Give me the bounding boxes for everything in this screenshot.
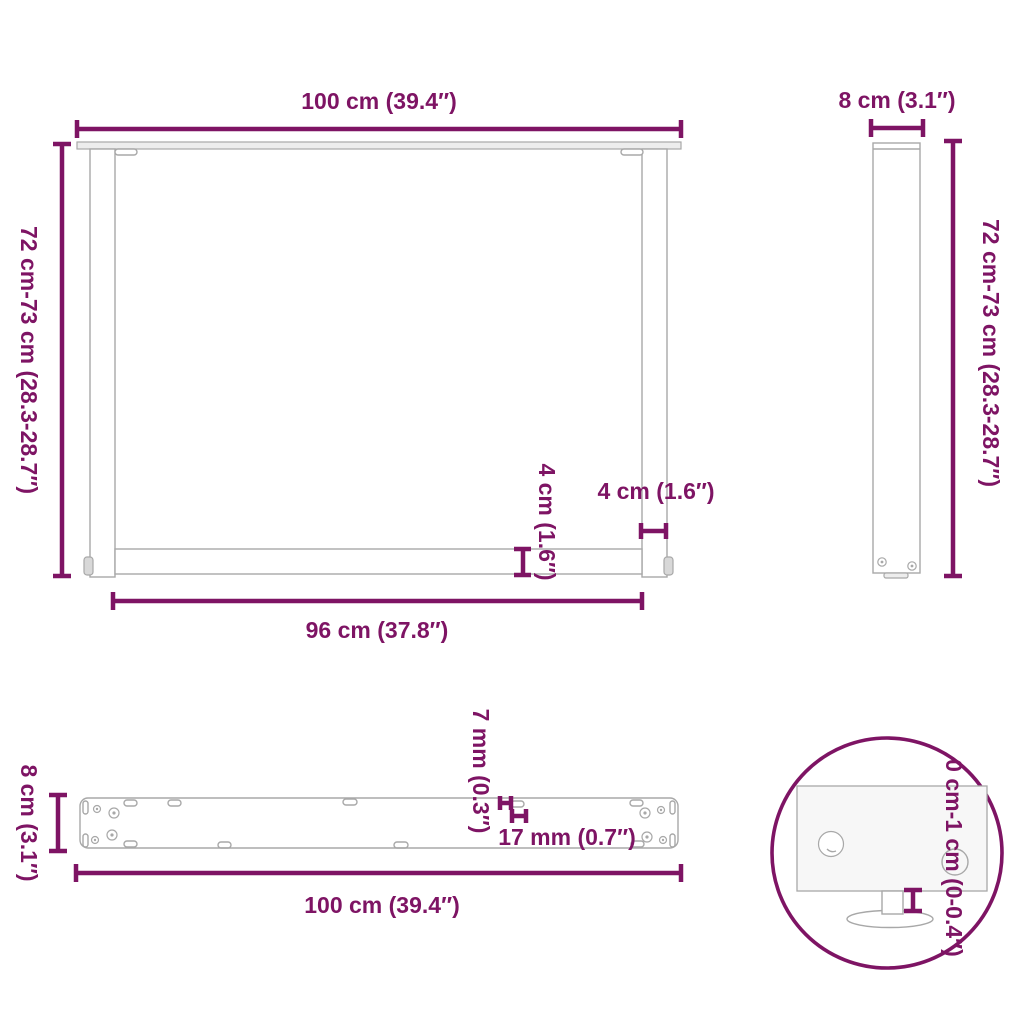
left-leg — [90, 149, 115, 577]
screw-dot — [643, 811, 646, 814]
right-foot — [664, 557, 673, 575]
front-width-label: 100 cm (39.4″) — [301, 88, 457, 114]
side-depth-label: 8 cm (3.1″) — [838, 87, 955, 113]
screw-dot — [645, 835, 648, 838]
right-mount-bracket — [621, 149, 643, 155]
front-frame — [77, 142, 681, 577]
leg-width-label: 4 cm (1.6″) — [597, 478, 714, 504]
front-inner-width-dimension-line — [113, 592, 642, 610]
screw-dot — [110, 833, 113, 836]
side-view: 8 cm (3.1″) 72 cm-73 cm (28.3-28.7″) — [838, 87, 1004, 578]
detail-foot-stem — [882, 891, 903, 914]
diagram-canvas: 100 cm (39.4″) 72 cm-73 cm (28.3-28.7″) … — [0, 0, 1024, 1024]
top-width-label: 100 cm (39.4″) — [304, 892, 460, 918]
front-height-dimension-line — [53, 144, 71, 576]
front-view: 100 cm (39.4″) 72 cm-73 cm (28.3-28.7″) … — [16, 88, 715, 643]
top-width-dimension-line — [76, 864, 681, 882]
side-leg — [873, 143, 920, 578]
hole-pitch-label: 17 mm (0.7″) — [498, 824, 636, 850]
screw-dot — [662, 839, 664, 841]
side-foot — [884, 573, 908, 578]
front-inner-width-label: 96 cm (37.8″) — [306, 617, 449, 643]
side-leg-bar — [873, 143, 920, 573]
detail-view: 0 cm-1 cm (0-0.4″) — [772, 738, 1002, 968]
side-height-label: 72 cm-73 cm (28.3-28.7″) — [978, 219, 1004, 487]
top-depth-label: 8 cm (3.1″) — [16, 764, 42, 881]
front-height-label: 72 cm-73 cm (28.3-28.7″) — [16, 226, 42, 494]
side-depth-dimension-line — [871, 119, 923, 137]
bottom-crossbar — [115, 549, 642, 574]
top-view: 8 cm (3.1″) 100 cm (39.4″) 7 mm (0.3″) 1… — [16, 709, 681, 918]
screw-dot — [660, 809, 662, 811]
side-screw-dot — [911, 565, 914, 568]
side-screw-dot — [881, 561, 884, 564]
screw-dot — [96, 808, 98, 810]
right-leg — [642, 149, 667, 577]
front-width-dimension-line — [77, 120, 681, 138]
left-mount-bracket — [115, 149, 137, 155]
left-foot — [84, 557, 93, 575]
crossbar-height-label: 4 cm (1.6″) — [534, 463, 560, 580]
top-plate — [77, 142, 681, 149]
adjustable-height-label: 0 cm-1 cm (0-0.4″) — [941, 759, 967, 957]
side-height-dimension-line — [944, 141, 962, 576]
detail-screw — [819, 832, 844, 857]
slot-width-label: 7 mm (0.3″) — [468, 709, 494, 834]
top-depth-dimension-line — [49, 795, 67, 851]
dimension-diagram: 100 cm (39.4″) 72 cm-73 cm (28.3-28.7″) … — [0, 0, 1024, 1024]
screw-dot — [112, 811, 115, 814]
screw-dot — [94, 839, 96, 841]
